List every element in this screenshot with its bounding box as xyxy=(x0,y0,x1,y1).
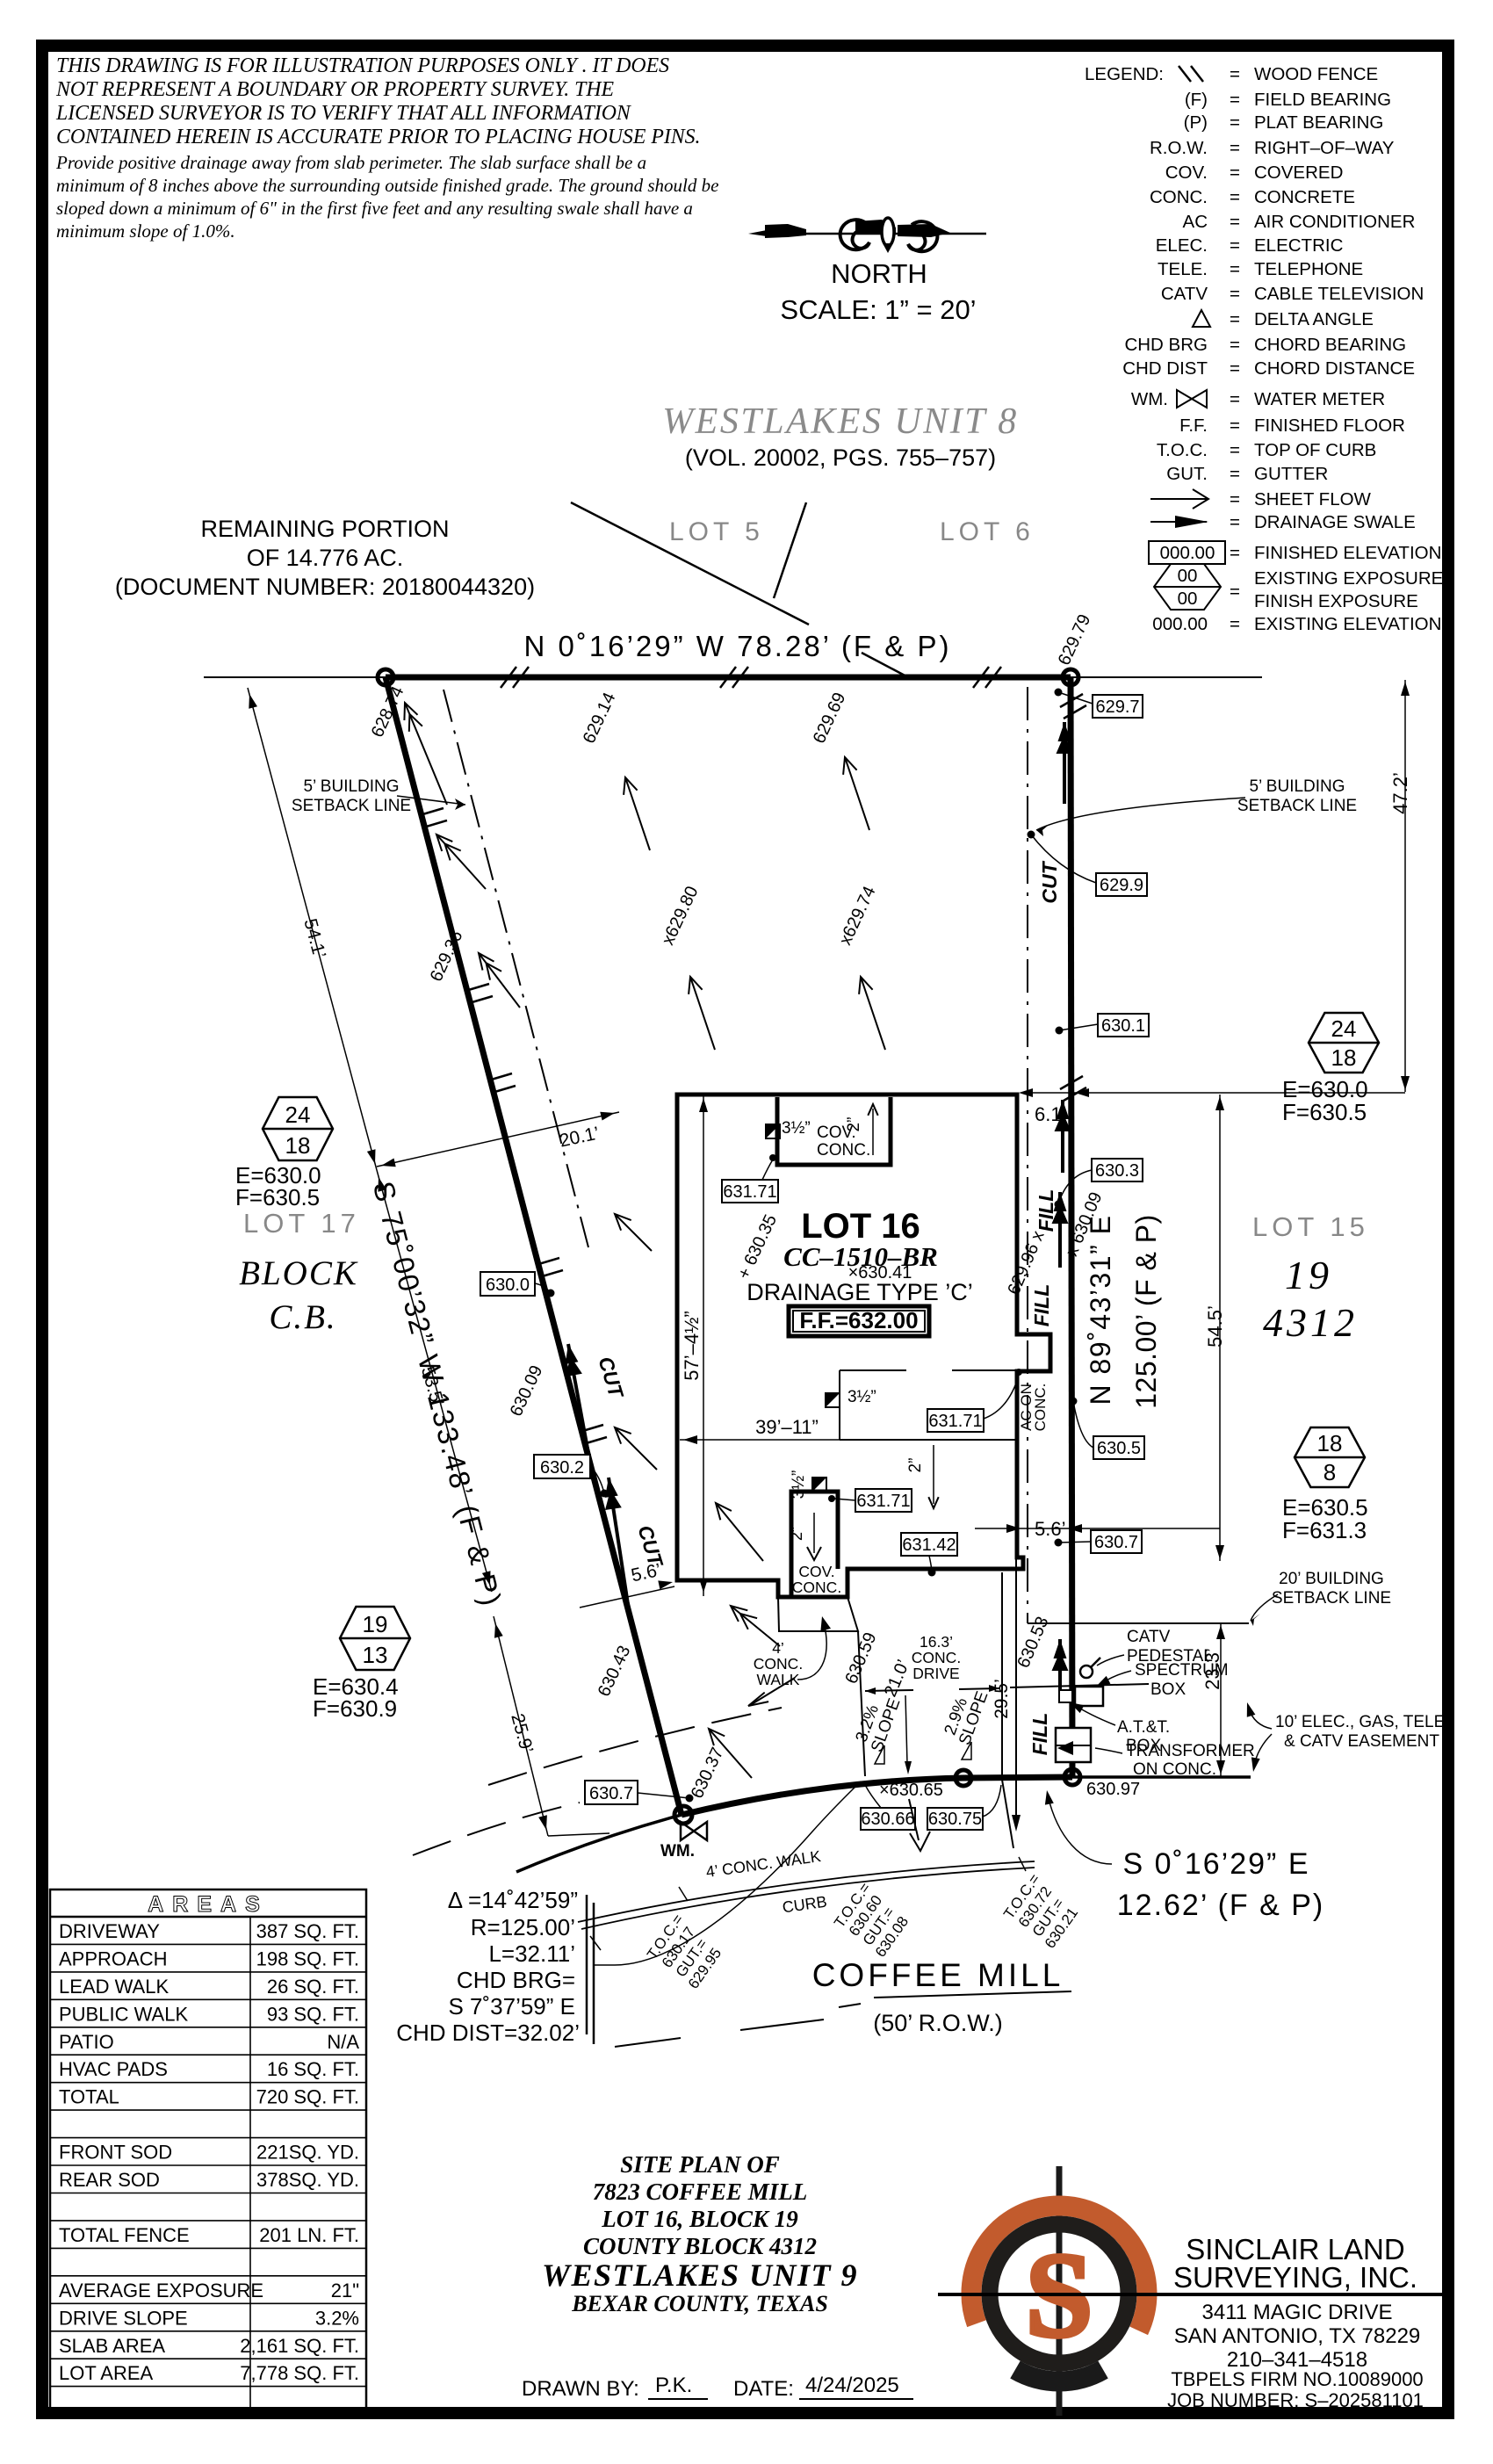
svg-text:629.69: 629.69 xyxy=(810,690,850,747)
svg-text:DRAWN BY:: DRAWN BY: xyxy=(522,2377,639,2401)
svg-text:CABLE TELEVISION: CABLE TELEVISION xyxy=(1254,284,1424,304)
svg-text:JOB NUMBER: S–202581101: JOB NUMBER: S–202581101 xyxy=(1167,2389,1424,2411)
svg-text:x629.80: x629.80 xyxy=(659,884,703,949)
svg-text:3½”: 3½” xyxy=(782,1119,811,1138)
svg-text:630.09: 630.09 xyxy=(507,1362,547,1420)
svg-text:CHD DIST: CHD DIST xyxy=(1122,358,1208,379)
svg-text:minimum slope of 1.0%.: minimum slope of 1.0%. xyxy=(56,220,235,242)
svg-text:×630.65: ×630.65 xyxy=(879,1781,943,1800)
svg-text:CHORD BEARING: CHORD BEARING xyxy=(1254,335,1406,355)
svg-text:198 SQ. FT.: 198 SQ. FT. xyxy=(256,1947,359,1969)
svg-text:PLAT BEARING: PLAT BEARING xyxy=(1254,112,1383,133)
svg-text:4’ CONC. WALK: 4’ CONC. WALK xyxy=(705,1847,822,1881)
svg-text:=: = xyxy=(1230,309,1240,329)
svg-text:F=631.3: F=631.3 xyxy=(1282,1517,1367,1543)
svg-text:SHEET FLOW: SHEET FLOW xyxy=(1254,489,1372,509)
svg-text:NORTH: NORTH xyxy=(831,258,927,289)
svg-text:FINISHED FLOOR: FINISHED FLOOR xyxy=(1254,415,1405,436)
svg-text:F.F.=632.00: F.F.=632.00 xyxy=(799,1307,918,1333)
svg-text:sloped down a minimum of 6" in: sloped down a minimum of 6" in the first… xyxy=(56,198,693,219)
svg-text:20.1’: 20.1’ xyxy=(558,1124,601,1152)
svg-text:2”: 2” xyxy=(845,1117,863,1132)
svg-text:2”: 2” xyxy=(788,1527,805,1541)
svg-text:25.9’: 25.9’ xyxy=(507,1711,537,1755)
svg-text:4/24/2025: 4/24/2025 xyxy=(805,2374,899,2397)
svg-text:LOT 17: LOT 17 xyxy=(243,1208,360,1239)
svg-text:P.K.: P.K. xyxy=(655,2374,692,2397)
svg-text:630.53: 630.53 xyxy=(1013,1614,1052,1671)
svg-text:57’–4½”: 57’–4½” xyxy=(681,1311,703,1381)
svg-text:631.71: 631.71 xyxy=(856,1492,910,1511)
svg-text:FILL: FILL xyxy=(1030,1284,1053,1327)
svg-text:FINISHED ELEVATION: FINISHED ELEVATION xyxy=(1254,543,1441,563)
svg-text:BOX: BOX xyxy=(1150,1680,1186,1699)
svg-text:AVERAGE EXPOSURE: AVERAGE EXPOSURE xyxy=(59,2280,263,2301)
svg-text:TELE.: TELE. xyxy=(1158,259,1208,279)
svg-text:FIELD BEARING: FIELD BEARING xyxy=(1254,90,1391,110)
svg-text:39’–11”: 39’–11” xyxy=(755,1416,819,1438)
svg-text:4’: 4’ xyxy=(772,1639,784,1657)
svg-text:REAR SOD: REAR SOD xyxy=(59,2169,160,2191)
svg-text:CUT: CUT xyxy=(594,1354,628,1402)
svg-text:CATV: CATV xyxy=(1127,1628,1171,1646)
svg-text:=: = xyxy=(1230,464,1240,484)
svg-text:630.97: 630.97 xyxy=(1086,1780,1140,1799)
svg-text:3411 MAGIC DRIVE: 3411 MAGIC DRIVE xyxy=(1202,2301,1393,2324)
svg-text:24: 24 xyxy=(1331,1015,1357,1042)
svg-text:SPECTRUM: SPECTRUM xyxy=(1135,1661,1229,1680)
svg-text:TBPELS FIRM NO.10089000: TBPELS FIRM NO.10089000 xyxy=(1171,2368,1423,2390)
svg-text:000.00: 000.00 xyxy=(1152,614,1208,634)
svg-text:CONC.: CONC. xyxy=(792,1579,841,1596)
svg-text:TOP OF CURB: TOP OF CURB xyxy=(1254,440,1376,460)
svg-text:PUBLIC WALK: PUBLIC WALK xyxy=(59,2003,188,2025)
svg-text:19: 19 xyxy=(363,1611,388,1637)
svg-text:F=630.5: F=630.5 xyxy=(1282,1099,1367,1125)
svg-text:CONC.: CONC. xyxy=(817,1141,870,1160)
svg-text:630.1: 630.1 xyxy=(1101,1016,1145,1036)
svg-text:COV.: COV. xyxy=(798,1563,834,1580)
svg-text:FILL: FILL xyxy=(1028,1713,1051,1756)
svg-text:7823 COFFEE MILL: 7823 COFFEE MILL xyxy=(593,2179,808,2205)
svg-text:LOT 15: LOT 15 xyxy=(1252,1211,1369,1242)
svg-text:631.71: 631.71 xyxy=(723,1182,776,1202)
svg-text:378SQ. YD.: 378SQ. YD. xyxy=(256,2169,359,2191)
svg-text:OF 14.776 AC.: OF 14.776 AC. xyxy=(247,545,404,571)
svg-text:N/A: N/A xyxy=(327,2031,359,2053)
svg-text:21": 21" xyxy=(331,2280,359,2301)
svg-text:00: 00 xyxy=(1178,566,1198,586)
svg-text:=: = xyxy=(1230,187,1240,207)
svg-text:A.T.&T.: A.T.&T. xyxy=(1117,1718,1170,1737)
svg-text:Provide positive drainage away: Provide positive drainage away from slab… xyxy=(55,152,646,173)
svg-text:8: 8 xyxy=(1324,1459,1336,1485)
svg-text:ELEC.: ELEC. xyxy=(1156,235,1208,256)
svg-text:=: = xyxy=(1230,389,1240,409)
svg-text:Δ =14˚42’59”: Δ =14˚42’59” xyxy=(448,1887,578,1913)
svg-text:=: = xyxy=(1230,112,1240,133)
svg-text:21.0’: 21.0’ xyxy=(881,1657,913,1700)
svg-text:18: 18 xyxy=(1331,1044,1357,1071)
svg-text:CATV: CATV xyxy=(1161,284,1208,304)
svg-text:R.O.W.: R.O.W. xyxy=(1150,138,1208,158)
svg-text:LOT 6: LOT 6 xyxy=(940,517,1035,546)
svg-text:SCALE: 1” = 20’: SCALE: 1” = 20’ xyxy=(780,294,976,325)
svg-text:x629.74: x629.74 xyxy=(836,884,880,949)
svg-text:13: 13 xyxy=(363,1642,388,1668)
svg-text:629.79: 629.79 xyxy=(1055,611,1095,668)
svg-text:WM.: WM. xyxy=(1131,389,1168,409)
svg-text:APPROACH: APPROACH xyxy=(59,1947,167,1969)
svg-text:LEGEND:: LEGEND: xyxy=(1085,64,1164,84)
svg-text:6.1’: 6.1’ xyxy=(1035,1103,1065,1125)
svg-text:3½”: 3½” xyxy=(847,1388,876,1406)
svg-text:24: 24 xyxy=(285,1102,311,1128)
svg-text:631.42: 631.42 xyxy=(902,1535,956,1555)
svg-text:EXISTING ELEVATION: EXISTING ELEVATION xyxy=(1254,614,1441,634)
svg-text:CONC.: CONC. xyxy=(754,1655,803,1673)
svg-text:PATIO: PATIO xyxy=(59,2031,114,2053)
svg-text:=: = xyxy=(1230,543,1240,563)
svg-text:LOT 16, BLOCK 19: LOT 16, BLOCK 19 xyxy=(601,2206,798,2232)
svg-text:93 SQ. FT.: 93 SQ. FT. xyxy=(267,2003,359,2025)
svg-text:SAN ANTONIO, TX 78229: SAN ANTONIO, TX 78229 xyxy=(1174,2324,1421,2348)
svg-text:630.59: 630.59 xyxy=(841,1629,880,1687)
svg-text:SETBACK LINE: SETBACK LINE xyxy=(1237,797,1357,815)
svg-text:=: = xyxy=(1230,259,1240,279)
svg-text:=: = xyxy=(1230,358,1240,379)
svg-text:CONC.: CONC. xyxy=(912,1649,961,1666)
svg-text:WESTLAKES UNIT 9: WESTLAKES UNIT 9 xyxy=(542,2258,858,2293)
svg-text:& CATV EASEMENT: & CATV EASEMENT xyxy=(1284,1732,1439,1751)
svg-text:20’ BUILDING: 20’ BUILDING xyxy=(1279,1570,1384,1588)
svg-text:CURB: CURB xyxy=(782,1893,828,1917)
svg-text:47.2’: 47.2’ xyxy=(1389,772,1411,814)
svg-text:10’ ELEC., GAS, TELE.: 10’ ELEC., GAS, TELE. xyxy=(1275,1713,1450,1731)
svg-text:4312: 4312 xyxy=(1263,1300,1358,1345)
svg-text:LOT AREA: LOT AREA xyxy=(59,2362,154,2384)
svg-text:LEAD WALK: LEAD WALK xyxy=(59,1976,169,1998)
svg-text:BEXAR COUNTY, TEXAS: BEXAR COUNTY, TEXAS xyxy=(571,2291,828,2316)
svg-text:630.3: 630.3 xyxy=(1095,1161,1139,1181)
svg-text:DRIVE SLOPE: DRIVE SLOPE xyxy=(59,2307,188,2329)
svg-text:DRAINAGE TYPE ’C’: DRAINAGE TYPE ’C’ xyxy=(746,1279,973,1305)
svg-text:720 SQ. FT.: 720 SQ. FT. xyxy=(256,2086,359,2108)
svg-text:CHORD DISTANCE: CHORD DISTANCE xyxy=(1254,358,1415,379)
svg-text:=: = xyxy=(1230,614,1240,634)
svg-text:630.2: 630.2 xyxy=(540,1458,584,1478)
svg-text:387 SQ. FT.: 387 SQ. FT. xyxy=(256,1920,359,1942)
svg-text:2,161 SQ. FT.: 2,161 SQ. FT. xyxy=(240,2335,359,2357)
svg-text:TOTAL: TOTAL xyxy=(59,2086,119,2108)
svg-text:ON CONC.: ON CONC. xyxy=(1133,1760,1216,1779)
svg-text:SURVEYING, INC.: SURVEYING, INC. xyxy=(1173,2261,1417,2294)
svg-text:00: 00 xyxy=(1178,589,1198,609)
svg-text:629.14: 629.14 xyxy=(580,690,620,747)
svg-text:18: 18 xyxy=(285,1132,311,1159)
svg-text:minimum of 8 inches above the: minimum of 8 inches above the surroundin… xyxy=(56,175,718,196)
svg-text:SETBACK LINE: SETBACK LINE xyxy=(1272,1589,1391,1608)
svg-text:221SQ. YD.: 221SQ. YD. xyxy=(256,2142,359,2164)
svg-text:WESTLAKES UNIT 8: WESTLAKES UNIT 8 xyxy=(662,401,1019,442)
svg-text:COV.: COV. xyxy=(1165,163,1208,183)
svg-text:NOT REPRESENT A BOUNDARY OR PR: NOT REPRESENT A BOUNDARY OR PROPERTY SUR… xyxy=(55,78,615,101)
svg-text:GUTTER: GUTTER xyxy=(1254,464,1328,484)
svg-text:201 LN. FT.: 201 LN. FT. xyxy=(259,2224,359,2246)
svg-text:630.5: 630.5 xyxy=(1097,1439,1141,1458)
svg-text:7,778 SQ. FT.: 7,778 SQ. FT. xyxy=(240,2362,359,2384)
svg-text:18: 18 xyxy=(1317,1430,1343,1456)
svg-text:WM.: WM. xyxy=(660,1842,695,1861)
svg-text:BLOCK: BLOCK xyxy=(239,1254,358,1292)
svg-text:C.B.: C.B. xyxy=(269,1298,336,1336)
svg-text:(P): (P) xyxy=(1184,112,1208,133)
svg-text:LOT 5: LOT 5 xyxy=(669,517,764,546)
svg-text:COFFEE MILL: COFFEE MILL xyxy=(812,1957,1064,1993)
svg-text:54.5’: 54.5’ xyxy=(1204,1305,1226,1348)
svg-text:CHD BRG=: CHD BRG= xyxy=(457,1967,575,1993)
svg-text:COVERED: COVERED xyxy=(1254,163,1343,183)
svg-text:AIR CONDITIONER: AIR CONDITIONER xyxy=(1254,212,1415,232)
svg-text:(DOCUMENT NUMBER: 2018004432: (DOCUMENT NUMBER: 20180044320) xyxy=(115,574,535,600)
svg-text:19: 19 xyxy=(1285,1253,1332,1297)
svg-text:629.7: 629.7 xyxy=(1095,697,1139,717)
svg-text:629.9: 629.9 xyxy=(1100,876,1143,895)
svg-text:16 SQ. FT.: 16 SQ. FT. xyxy=(267,2058,359,2080)
svg-text:=: = xyxy=(1230,64,1240,84)
svg-text:CONC.: CONC. xyxy=(1150,187,1208,207)
svg-text:SITE PLAN OF: SITE PLAN OF xyxy=(620,2151,780,2178)
svg-text:SETBACK LINE: SETBACK LINE xyxy=(292,797,411,815)
svg-text:FRONT SOD: FRONT SOD xyxy=(59,2142,172,2164)
svg-text:631.71: 631.71 xyxy=(928,1412,982,1431)
svg-text:12.62’ (F & P): 12.62’ (F & P) xyxy=(1117,1889,1324,1922)
svg-text:3½”: 3½” xyxy=(790,1470,808,1499)
svg-text:COUNTY BLOCK 4312: COUNTY BLOCK 4312 xyxy=(583,2233,817,2259)
svg-text:CHD DIST=32.02’: CHD DIST=32.02’ xyxy=(396,2020,580,2046)
svg-text:630.37: 630.37 xyxy=(688,1745,728,1802)
svg-text:=: = xyxy=(1230,512,1240,532)
svg-text:=: = xyxy=(1230,90,1240,110)
svg-text:630.7: 630.7 xyxy=(1094,1533,1138,1552)
svg-text:CONC.: CONC. xyxy=(1032,1384,1049,1432)
svg-text:N 89˚43’31” E: N 89˚43’31” E xyxy=(1085,1215,1116,1405)
svg-text:GUT.: GUT. xyxy=(1166,464,1208,484)
svg-text:630.43: 630.43 xyxy=(595,1643,635,1700)
svg-text:=: = xyxy=(1230,582,1240,602)
svg-text:HVAC PADS: HVAC PADS xyxy=(59,2058,168,2080)
svg-text:=: = xyxy=(1230,212,1240,232)
svg-text:TOTAL FENCE: TOTAL FENCE xyxy=(59,2224,190,2246)
svg-text:630.66: 630.66 xyxy=(861,1810,914,1829)
svg-text:N 0˚16’29” W 78.28’ (F & P): N 0˚16’29” W 78.28’ (F & P) xyxy=(524,630,952,662)
svg-text:630.75: 630.75 xyxy=(928,1810,982,1829)
svg-text:=: = xyxy=(1230,489,1240,509)
svg-text:2”: 2” xyxy=(906,1458,925,1473)
svg-text:DATE:: DATE: xyxy=(733,2377,794,2401)
svg-text:WOOD FENCE: WOOD FENCE xyxy=(1254,64,1378,84)
svg-text:AREAS: AREAS xyxy=(148,1892,269,1917)
svg-text:TELEPHONE: TELEPHONE xyxy=(1254,259,1363,279)
svg-text:DRIVEWAY: DRIVEWAY xyxy=(59,1920,160,1942)
svg-text:R=125.00’: R=125.00’ xyxy=(471,1914,575,1940)
svg-text:CUT: CUT xyxy=(1038,860,1061,903)
svg-text:000.00: 000.00 xyxy=(1160,543,1215,563)
svg-text:630.0: 630.0 xyxy=(486,1275,530,1295)
svg-text:54.1’: 54.1’ xyxy=(299,916,329,960)
svg-text:SLAB AREA: SLAB AREA xyxy=(59,2335,165,2357)
svg-text:(50’ R.O.W.): (50’ R.O.W.) xyxy=(873,2010,1003,2036)
svg-text:DRAINAGE SWALE: DRAINAGE SWALE xyxy=(1254,512,1416,532)
svg-text:ELECTRIC: ELECTRIC xyxy=(1254,235,1344,256)
svg-text:=: = xyxy=(1230,163,1240,183)
svg-text:=: = xyxy=(1230,335,1240,355)
svg-text:=: = xyxy=(1230,440,1240,460)
svg-text:CONTAINED HEREIN IS ACCURATE P: CONTAINED HEREIN IS ACCURATE PRIOR TO PL… xyxy=(56,126,701,148)
svg-text:WATER METER: WATER METER xyxy=(1254,389,1385,409)
svg-text:TRANSFORMER: TRANSFORMER xyxy=(1126,1742,1255,1760)
svg-text:S 7˚37’59” E: S 7˚37’59” E xyxy=(448,1993,575,2020)
svg-text:5’ BUILDING: 5’ BUILDING xyxy=(1249,777,1345,796)
svg-text:F.F.: F.F. xyxy=(1179,415,1208,436)
svg-text:FINISH EXPOSURE: FINISH EXPOSURE xyxy=(1254,591,1418,611)
svg-text:T.O.C.: T.O.C. xyxy=(1157,440,1208,460)
svg-text:THIS DRAWING IS FOR ILLUSTRATI: THIS DRAWING IS FOR ILLUSTRATION PURPOSE… xyxy=(56,54,669,77)
svg-text:+ 630.35: + 630.35 xyxy=(734,1211,781,1282)
svg-text:5’ BUILDING: 5’ BUILDING xyxy=(303,777,399,796)
svg-text:(VOL. 20002, PGS. 755–757): (VOL. 20002, PGS. 755–757) xyxy=(685,444,996,471)
svg-text:16.3’: 16.3’ xyxy=(920,1633,953,1651)
svg-text:(F): (F) xyxy=(1185,90,1208,110)
svg-text:EXISTING EXPOSURE: EXISTING EXPOSURE xyxy=(1254,568,1443,589)
svg-text:LICENSED SURVEYOR IS TO VERIFY: LICENSED SURVEYOR IS TO VERIFY THAT ALL … xyxy=(55,102,631,125)
svg-text:DRIVE: DRIVE xyxy=(912,1665,959,1682)
svg-text:630.7: 630.7 xyxy=(589,1784,633,1803)
svg-text:29.5’: 29.5’ xyxy=(992,1679,1012,1719)
svg-text:125.00’ (F & P): 125.00’ (F & P) xyxy=(1130,1214,1162,1409)
svg-text:=: = xyxy=(1230,415,1240,436)
svg-text:3.2%: 3.2% xyxy=(315,2307,359,2329)
svg-text:AC: AC xyxy=(1183,212,1208,232)
svg-text:S 0˚16’29” E: S 0˚16’29” E xyxy=(1123,1847,1310,1881)
svg-text:REMAINING PORTION: REMAINING PORTION xyxy=(200,516,449,542)
svg-text:=: = xyxy=(1230,284,1240,304)
svg-text:CONCRETE: CONCRETE xyxy=(1254,187,1355,207)
svg-text:CHD BRG: CHD BRG xyxy=(1124,335,1208,355)
svg-text:F=630.9: F=630.9 xyxy=(313,1695,397,1722)
svg-text:5.6’: 5.6’ xyxy=(630,1560,663,1586)
svg-text:LOT 16: LOT 16 xyxy=(801,1207,920,1246)
svg-text:=: = xyxy=(1230,138,1240,158)
svg-text:26 SQ. FT.: 26 SQ. FT. xyxy=(267,1976,359,1998)
svg-text:RIGHT–OF–WAY: RIGHT–OF–WAY xyxy=(1254,138,1395,158)
svg-text:=: = xyxy=(1230,235,1240,256)
svg-text:DELTA ANGLE: DELTA ANGLE xyxy=(1254,309,1374,329)
svg-text:F=630.5: F=630.5 xyxy=(235,1184,320,1210)
svg-text:L=32.11’: L=32.11’ xyxy=(488,1940,575,1967)
